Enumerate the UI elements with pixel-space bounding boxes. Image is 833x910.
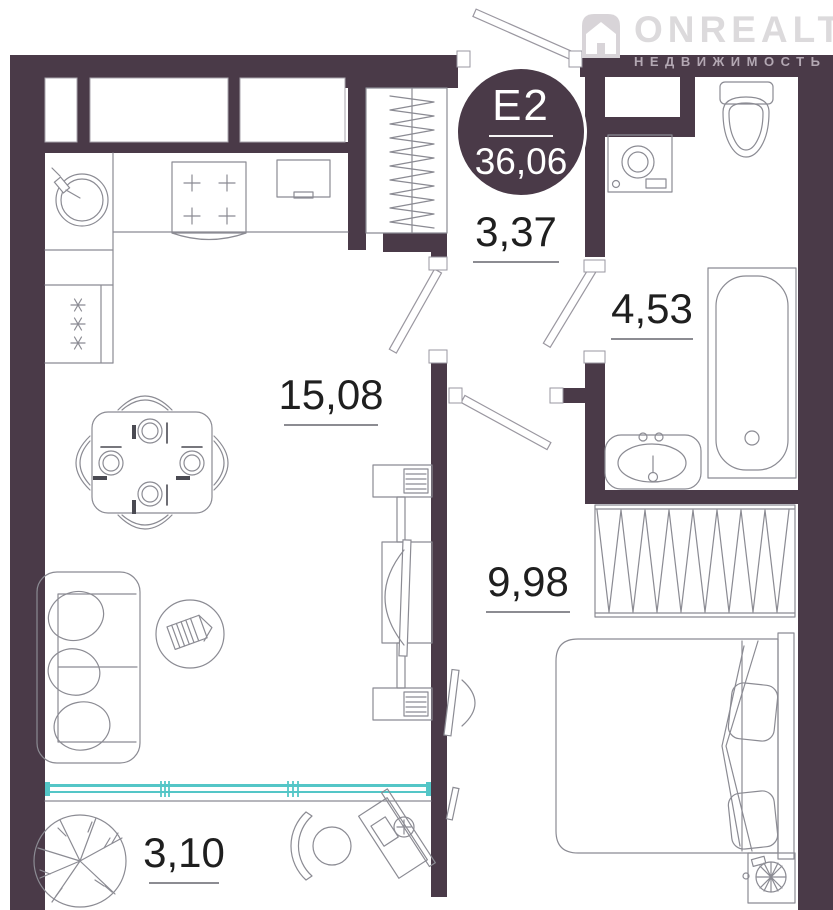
label-underline: [284, 424, 378, 426]
kitchen-sink: [52, 168, 108, 226]
bedroom-area: 9,98: [487, 561, 569, 603]
washing-machine: [608, 135, 672, 192]
kitchen-counter: [45, 153, 348, 363]
onrealt-logo: ONREALT НЕДВИЖИМОСТЬ: [578, 10, 833, 69]
bed: [556, 633, 794, 859]
room-label-living-kitchen: 15,08: [261, 374, 401, 426]
sofa: [37, 572, 140, 763]
kitchen-cabinet: [277, 160, 330, 198]
toilet: [720, 82, 773, 157]
label-underline: [149, 882, 219, 884]
living-room-door: [389, 257, 447, 363]
room-label-hallway: 3,37: [446, 211, 586, 263]
stove: [172, 162, 246, 240]
room-label-balcony: 3,10: [114, 832, 254, 884]
bedroom-tv: [444, 670, 475, 820]
plant: [34, 815, 126, 907]
logo-brand: ONREALT: [634, 10, 833, 51]
balcony-glazing: [45, 781, 431, 801]
house-icon: [578, 10, 624, 62]
bathroom-sink: [605, 433, 701, 489]
label-underline: [473, 261, 559, 263]
dining-table: [76, 396, 228, 529]
plan-total-area: 36,06: [475, 143, 568, 180]
wardrobe: [595, 505, 795, 617]
fan-unit: [743, 853, 795, 903]
walls: [10, 55, 833, 910]
tv-unit: [373, 465, 432, 720]
balcony-desk: [359, 789, 436, 878]
badge-divider: [489, 135, 553, 137]
plan-code: Е2: [492, 84, 550, 128]
balcony-area: 3,10: [143, 832, 225, 874]
windows: [45, 78, 345, 142]
room-label-bathroom: 4,53: [582, 288, 722, 340]
coffee-table: [156, 600, 224, 668]
fridge: [71, 299, 85, 349]
hallway-area: 3,37: [475, 211, 557, 253]
label-underline: [611, 338, 693, 340]
balcony-chair: [291, 812, 351, 880]
room-label-bedroom: 9,98: [458, 561, 598, 613]
floor-plan-drawing: [0, 0, 833, 910]
plan-badge: Е2 36,06: [455, 66, 587, 198]
entrance-door: [457, 9, 582, 67]
living-kitchen-area: 15,08: [278, 374, 383, 416]
hall-closet: [366, 88, 447, 233]
bedroom-door: [449, 388, 563, 450]
bathroom-area: 4,53: [611, 288, 693, 330]
label-underline: [486, 611, 570, 613]
logo-tagline: НЕДВИЖИМОСТЬ: [634, 54, 833, 69]
floor-plan: 3,37 4,53 15,08 9,98 3,10 Е2 36,06 ONREA…: [0, 0, 833, 910]
